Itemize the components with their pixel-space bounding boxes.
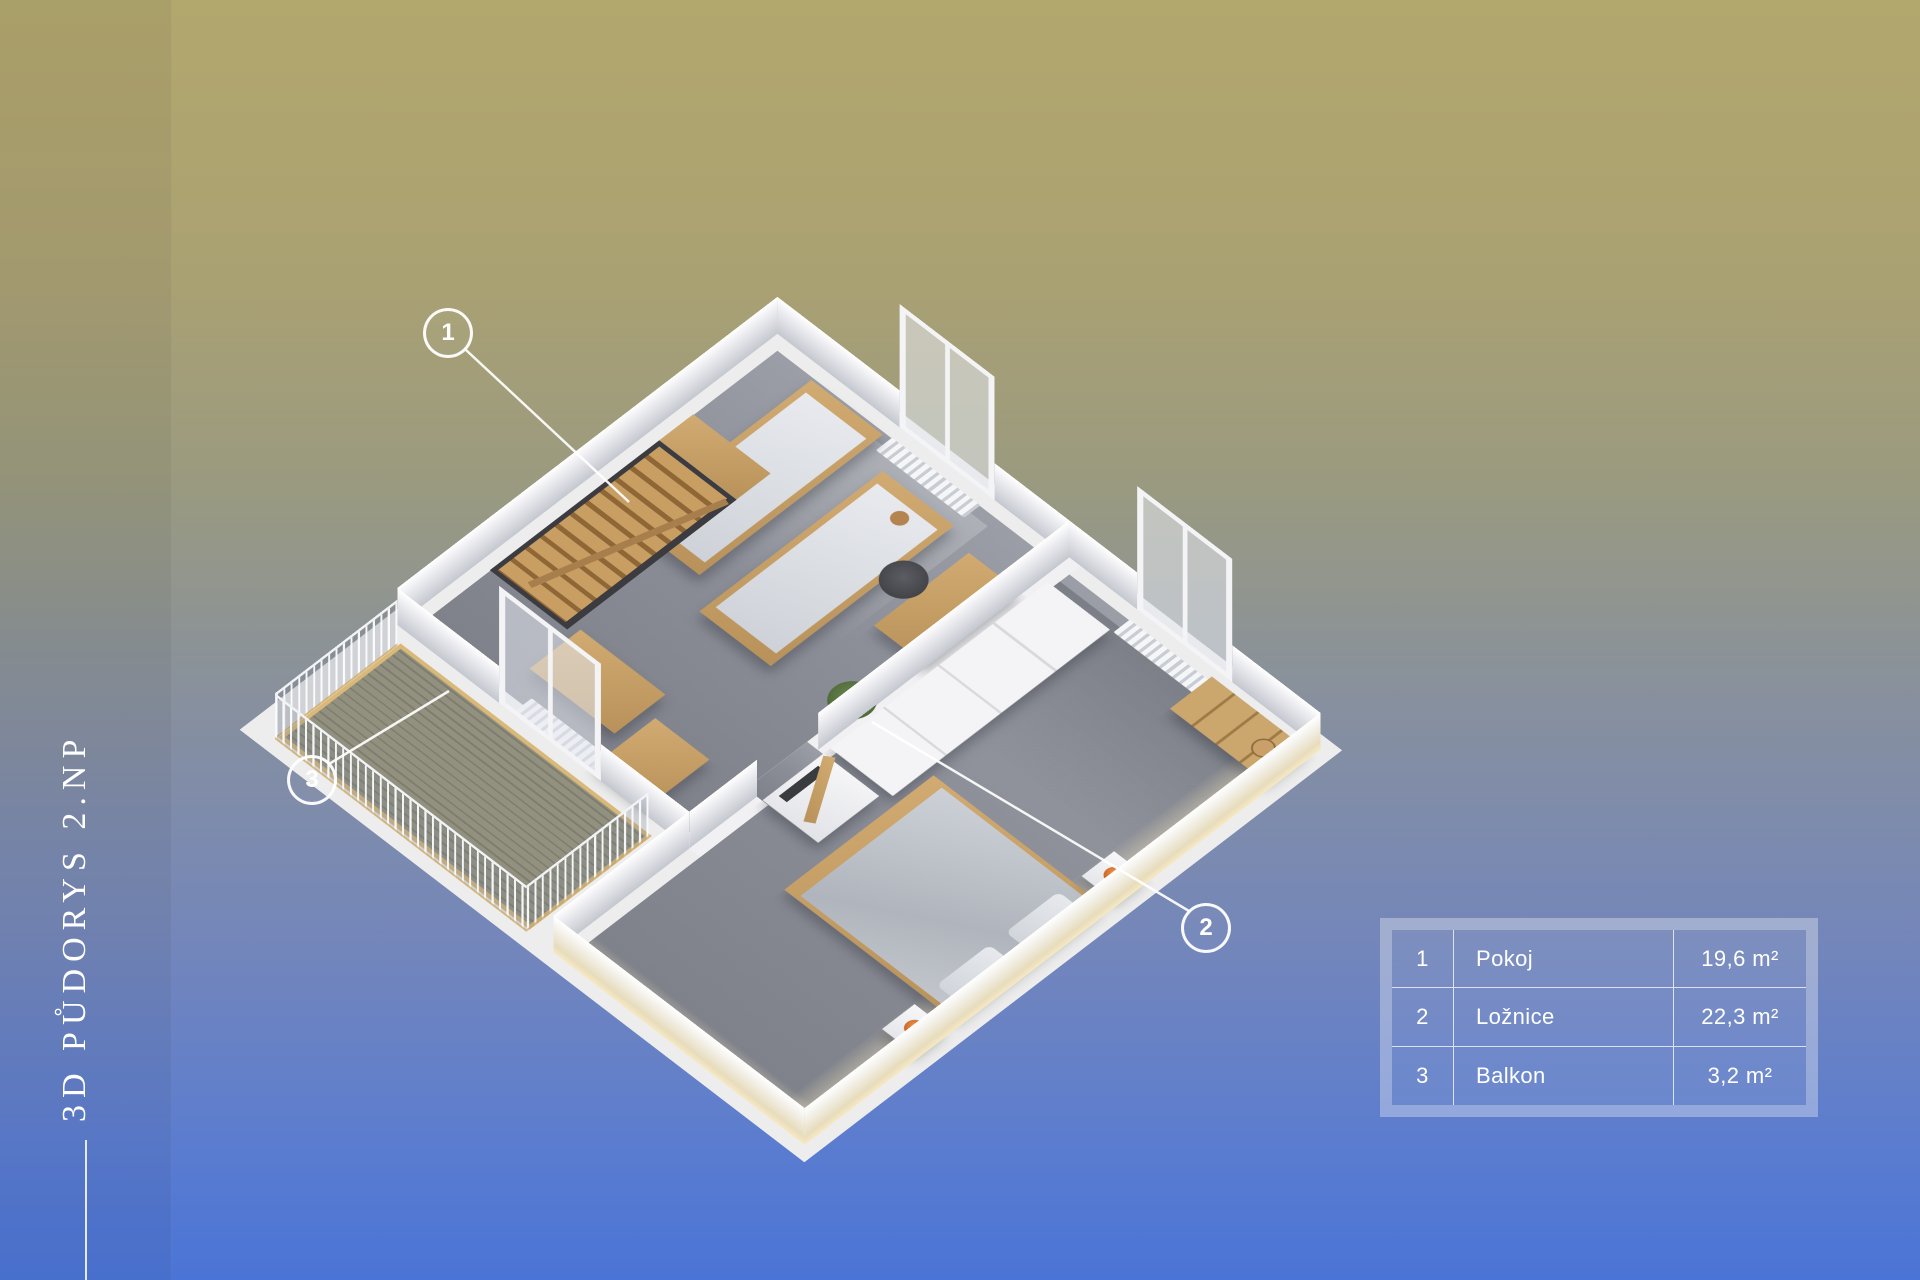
page-title: 3D PŮDORYS 2.NP [56, 622, 94, 1122]
callout-badge-1: 1 [423, 308, 473, 358]
legend-number: 3 [1392, 1047, 1454, 1105]
legend-number: 1 [1392, 930, 1454, 987]
legend-number: 2 [1392, 988, 1454, 1045]
legend-row-balkon: 3 Balkon 3,2 m² [1392, 1047, 1806, 1105]
window-mullion [945, 344, 950, 460]
legend-room-area: 22,3 m² [1674, 988, 1806, 1045]
callout-number: 2 [1199, 914, 1212, 942]
legend-row-loznice: 2 Ložnice 22,3 m² [1392, 988, 1806, 1046]
title-rule-line [85, 1140, 87, 1280]
legend-room-name: Balkon [1454, 1047, 1674, 1105]
window-mullion [1183, 526, 1188, 642]
callout-number: 3 [305, 766, 318, 794]
door-mullion [548, 629, 553, 739]
legend-room-area: 3,2 m² [1674, 1047, 1806, 1105]
legend-room-name: Pokoj [1454, 930, 1674, 987]
floorplan-3d-model [262, 334, 1321, 1145]
floorplan-page: 1 2 3 3D PŮDORYS 2.NP 1 Pokoj 19,6 m² 2 … [0, 0, 1920, 1280]
legend-table: 1 Pokoj 19,6 m² 2 Ložnice 22,3 m² 3 Balk… [1380, 918, 1818, 1117]
callout-number: 1 [441, 319, 454, 347]
callout-badge-2: 2 [1181, 903, 1231, 953]
callout-badge-3: 3 [287, 755, 337, 805]
floorplan-3d-scene [391, 360, 1191, 1120]
legend-room-name: Ložnice [1454, 988, 1674, 1045]
legend-row-pokoj: 1 Pokoj 19,6 m² [1392, 930, 1806, 988]
legend-room-area: 19,6 m² [1674, 930, 1806, 987]
